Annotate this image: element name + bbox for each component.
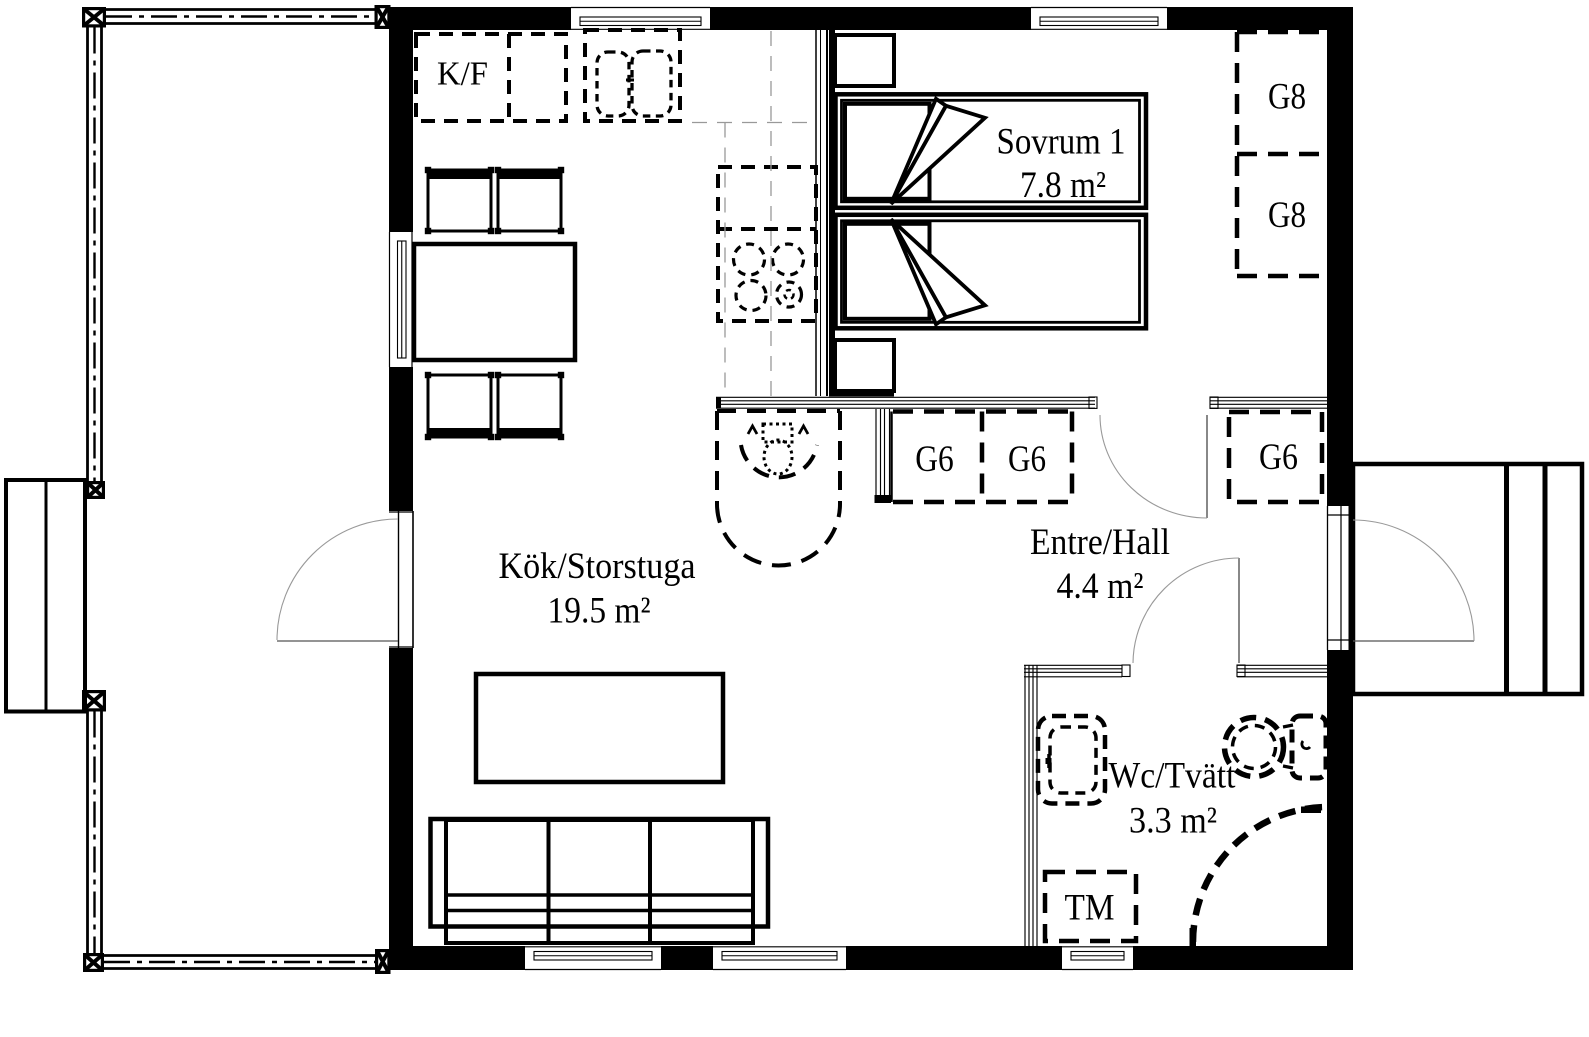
- svg-text:TM: TM: [1065, 888, 1115, 929]
- svg-text:G6: G6: [915, 439, 954, 480]
- svg-text:Sovrum 1: Sovrum 1: [997, 121, 1126, 162]
- svg-text:19.5 m²: 19.5 m²: [548, 591, 651, 632]
- svg-text:G8: G8: [1268, 77, 1306, 118]
- svg-text:G8: G8: [1268, 195, 1306, 236]
- svg-text:7.8 m²: 7.8 m²: [1020, 165, 1106, 206]
- svg-text:K/F: K/F: [437, 55, 488, 92]
- svg-text:Kök/Storstuga: Kök/Storstuga: [499, 546, 696, 587]
- svg-text:G6: G6: [1008, 439, 1046, 480]
- svg-text:3.3 m²: 3.3 m²: [1129, 801, 1217, 842]
- svg-text:4.4 m²: 4.4 m²: [1057, 566, 1144, 607]
- svg-text:Entre/Hall: Entre/Hall: [1030, 522, 1170, 563]
- svg-text:Wc/Tvätt: Wc/Tvätt: [1109, 755, 1237, 796]
- svg-text:G6: G6: [1259, 437, 1298, 478]
